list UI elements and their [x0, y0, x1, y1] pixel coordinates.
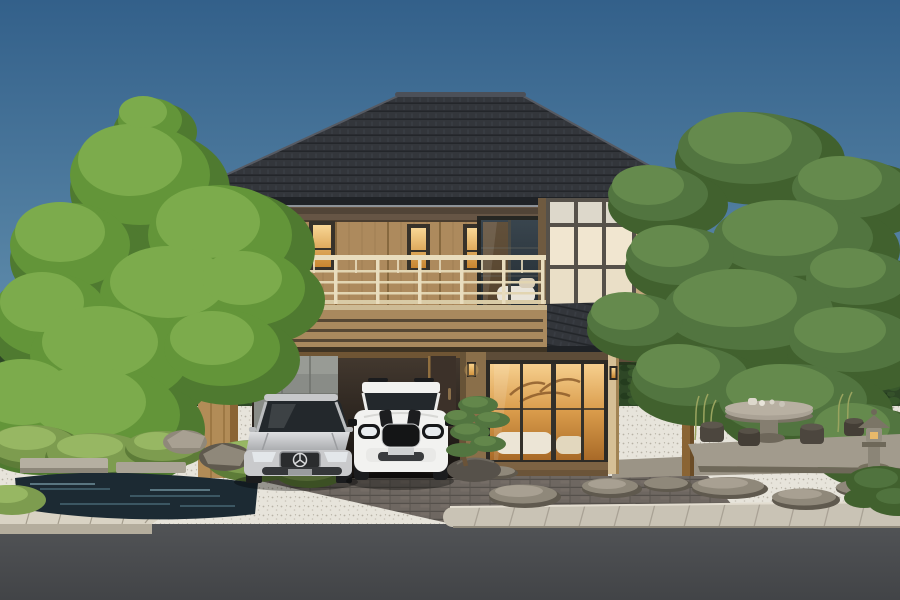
door-handle — [448, 388, 451, 400]
porch-post-1 — [608, 352, 619, 474]
lantern-light — [870, 432, 878, 439]
headlight — [425, 427, 441, 436]
side-mirror — [249, 427, 256, 432]
roof-rail — [414, 378, 434, 382]
suv-car — [346, 378, 454, 490]
mini-grille — [382, 424, 420, 447]
pond — [15, 473, 258, 520]
headlight — [361, 427, 377, 436]
suv-roof — [362, 382, 440, 393]
side-mirror — [346, 427, 353, 432]
asphalt-road — [0, 524, 900, 600]
scene-canvas — [0, 0, 900, 600]
side-mirror — [348, 419, 357, 426]
car-roof — [264, 394, 338, 401]
license-plate — [388, 448, 414, 455]
license-plate — [288, 469, 312, 476]
headlight — [252, 452, 276, 462]
balcony-glass-door — [477, 216, 543, 312]
architectural-rendering — [0, 0, 900, 600]
roof-ridge — [395, 92, 526, 97]
roof-rail — [368, 378, 388, 382]
headlight — [324, 452, 348, 462]
